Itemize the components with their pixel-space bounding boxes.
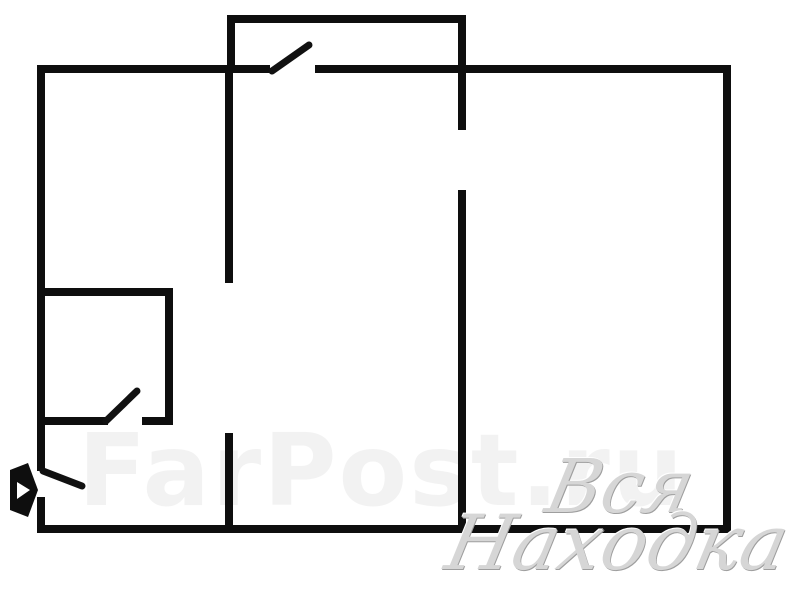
outer-top-wall-right-segment — [315, 65, 730, 73]
balcony-top-wall — [227, 15, 466, 23]
entrance-door-leaf — [43, 471, 82, 486]
outer-left-wall-upper-segment — [37, 65, 45, 471]
balcony-door-leaf — [272, 45, 309, 71]
small-room-top-wall — [37, 288, 173, 296]
small-room-bottom-wall-right — [142, 417, 173, 425]
interior-wall-2 — [458, 190, 466, 529]
floor-plan-image: FarPost.ru Вся Находка — [0, 0, 800, 615]
interior-wall-1-lower-segment — [225, 433, 233, 529]
balcony-right-wall — [458, 15, 466, 130]
small-room-right-wall — [165, 288, 173, 425]
outer-bottom-wall — [37, 525, 731, 533]
small-room-bottom-wall-left — [42, 417, 108, 425]
balcony-left-wall — [227, 15, 235, 69]
interior-wall-1-upper-segment — [225, 73, 233, 283]
outer-top-wall-left-segment — [37, 65, 270, 73]
small-room-door-leaf — [106, 391, 137, 421]
outer-right-wall — [723, 65, 731, 533]
floor-plan-svg — [0, 0, 800, 615]
